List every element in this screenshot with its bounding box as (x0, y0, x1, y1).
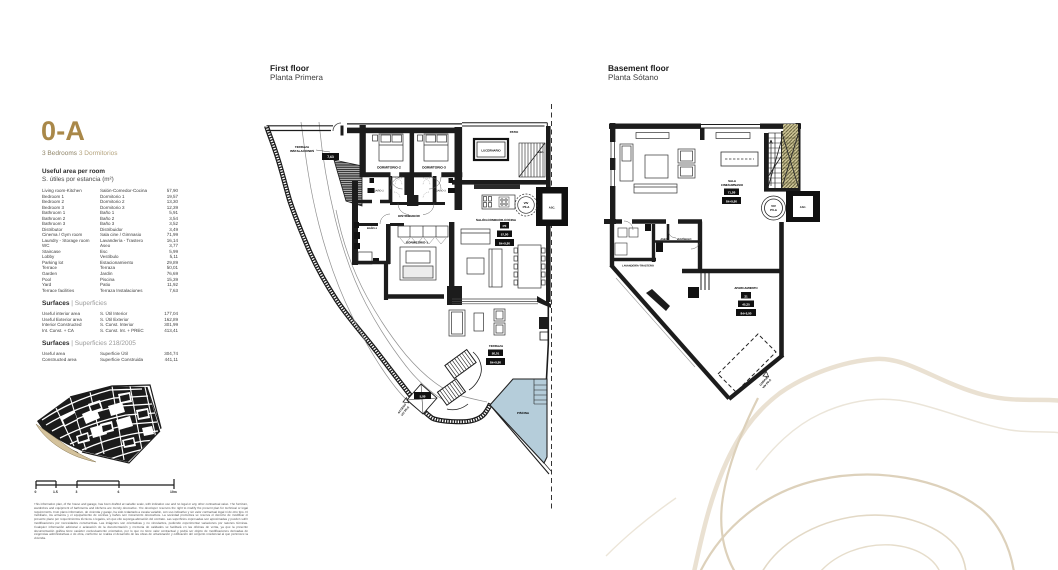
svg-text:10m: 10m (170, 490, 177, 494)
svg-text:BAÑO-1: BAÑO-1 (367, 226, 378, 230)
svg-text:SALÓN-COMEDOR-COCINA: SALÓN-COMEDOR-COCINA (476, 218, 517, 222)
svg-text:50,01: 50,01 (492, 352, 500, 356)
svg-text:84+9,90: 84+9,90 (741, 311, 752, 315)
svg-text:1.5: 1.5 (53, 490, 58, 494)
svg-text:0: 0 (35, 490, 37, 494)
svg-text:6: 6 (118, 490, 120, 494)
svg-text:DISTRIBUIDOR: DISTRIBUIDOR (398, 214, 421, 218)
svg-text:21: 21 (744, 294, 748, 298)
svg-text:45,25: 45,25 (742, 303, 750, 307)
svg-text:APARCAMIENTO: APARCAMIENTO (734, 286, 758, 290)
svg-text:ESC.: ESC. (538, 151, 544, 154)
svg-text:DORMITORIO-3: DORMITORIO-3 (422, 166, 446, 170)
svg-text:84+9,90: 84+9,90 (499, 241, 510, 245)
svg-text:ASC.: ASC. (549, 207, 556, 210)
svg-text:CINE/GIMNASIO: CINE/GIMNASIO (721, 183, 744, 187)
svg-text:BAÑO-2: BAÑO-2 (374, 189, 384, 193)
svg-text:57,90: 57,90 (501, 233, 509, 237)
svg-text:DORMITORIO-1: DORMITORIO-1 (406, 241, 428, 245)
svg-text:DORMITORIO-2: DORMITORIO-2 (377, 166, 401, 170)
svg-text:P0: P0 (503, 224, 507, 228)
svg-text:TERRAZA: TERRAZA (489, 344, 504, 348)
svg-text:7,63: 7,63 (327, 155, 334, 159)
svg-text:BAÑO-3: BAÑO-3 (436, 189, 446, 193)
svg-text:PISCINA: PISCINA (517, 411, 530, 415)
svg-text:3: 3 (76, 490, 78, 494)
svg-text:P0-A: P0-A (523, 205, 531, 209)
svg-text:PATIO: PATIO (510, 130, 519, 134)
svg-text:5,99: 5,99 (420, 394, 426, 398)
svg-text:LUCERNARIO: LUCERNARIO (481, 149, 501, 153)
svg-text:ASC.: ASC. (800, 206, 807, 209)
svg-text:84+9,90: 84+9,90 (726, 199, 737, 203)
svg-text:P0-A: P0-A (770, 208, 778, 212)
svg-text:LAVANDERÍA-TRASTERO: LAVANDERÍA-TRASTERO (622, 264, 654, 268)
svg-text:71,99: 71,99 (728, 191, 736, 195)
svg-text:84+9,90: 84+9,90 (490, 360, 501, 364)
svg-text:INSTALACIONES: INSTALACIONES (290, 149, 314, 153)
